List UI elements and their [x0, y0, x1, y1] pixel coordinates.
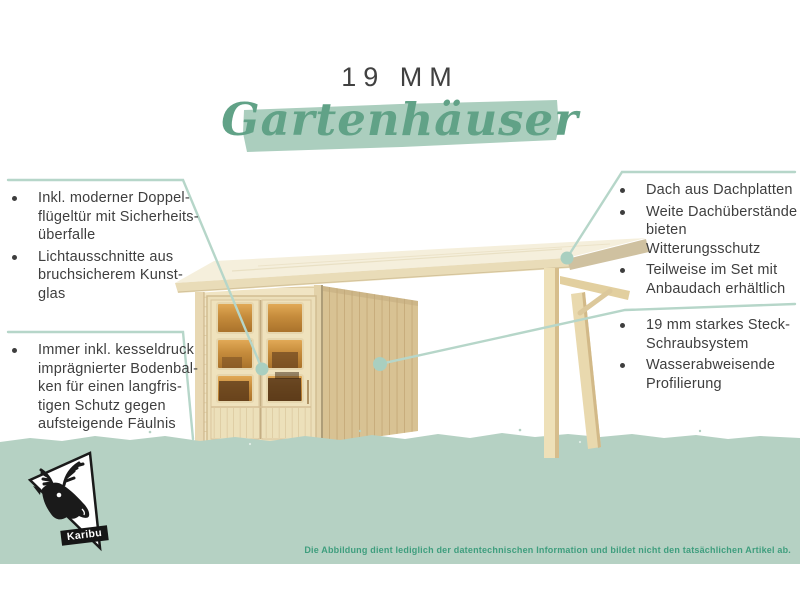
band-speck [579, 441, 581, 443]
callout-dot-wall [373, 357, 387, 371]
bullet-dot [620, 268, 625, 273]
side-wall [323, 286, 418, 444]
callout-item: Immer inkl. kesseldruck imprägnierter Bo… [10, 341, 202, 434]
callout-text: Weite Dachüberstände bieten Witterungssc… [646, 203, 800, 259]
size-label: 19 MM [0, 62, 800, 93]
callout-text: Immer inkl. kesseldruck imprägnierter Bo… [38, 341, 198, 434]
bullet-dot [620, 323, 625, 328]
page-title: Gartenhäuser [0, 93, 800, 146]
bullet-dot [620, 210, 625, 215]
callout-text: Inkl. moderner Doppel- flügeltür mit Sic… [38, 189, 199, 245]
canopy [544, 268, 610, 458]
callout-item: Dach aus Dachplatten [618, 181, 800, 200]
callout-right-top: Dach aus Dachplatten Weite Dachüberständ… [618, 181, 800, 301]
door-bottom-panel-left [212, 408, 259, 438]
callout-item: Inkl. moderner Doppel- flügeltür mit Sic… [10, 189, 202, 245]
window-pane [267, 303, 303, 333]
bullet-dot [620, 188, 625, 193]
callout-text: Teilweise im Set mit Anbaudach erhältlic… [646, 261, 785, 298]
callout-text: 19 mm starkes Steck- Schraubsystem [646, 316, 790, 353]
callout-left-top: Inkl. moderner Doppel- flügeltür mit Sic… [10, 189, 202, 306]
callout-right-bottom: 19 mm starkes Steck- Schraubsystem Wasse… [618, 316, 800, 396]
door-bottom-panel-right [262, 408, 310, 438]
infographic-page: 19 MM Gartenhäuser Inkl. moderner Doppel… [0, 0, 800, 600]
band-speck [519, 429, 522, 432]
callout-left-bottom: Immer inkl. kesseldruck imprägnierter Bo… [10, 341, 202, 437]
canopy-post-near-shade [555, 268, 559, 458]
band-speck [699, 430, 701, 432]
callout-item: Wasserabweisende Profilierung [618, 356, 800, 393]
bullet-dot [12, 196, 17, 201]
callout-item: Lichtausschnitte aus bruchsicherem Kunst… [10, 248, 202, 304]
bullet-dot [12, 348, 17, 353]
callout-item: Teilweise im Set mit Anbaudach erhältlic… [618, 261, 800, 298]
band-speck [359, 430, 361, 432]
callout-dot-roof [561, 252, 574, 265]
bullet-dot [12, 255, 17, 260]
bottom-band [0, 429, 800, 564]
band-speck [249, 443, 251, 445]
callout-text: Dach aus Dachplatten [646, 181, 793, 200]
callout-text: Wasserabweisende Profilierung [646, 356, 775, 393]
disclaimer-text: Die Abbildung dient lediglich der datent… [304, 545, 791, 555]
callout-text: Lichtausschnitte aus bruchsicherem Kunst… [38, 248, 183, 304]
bullet-dot [620, 363, 625, 368]
callout-item: Weite Dachüberstände bieten Witterungssc… [618, 203, 800, 259]
callout-item: 19 mm starkes Steck- Schraubsystem [618, 316, 800, 353]
callout-dot-door [256, 363, 269, 376]
